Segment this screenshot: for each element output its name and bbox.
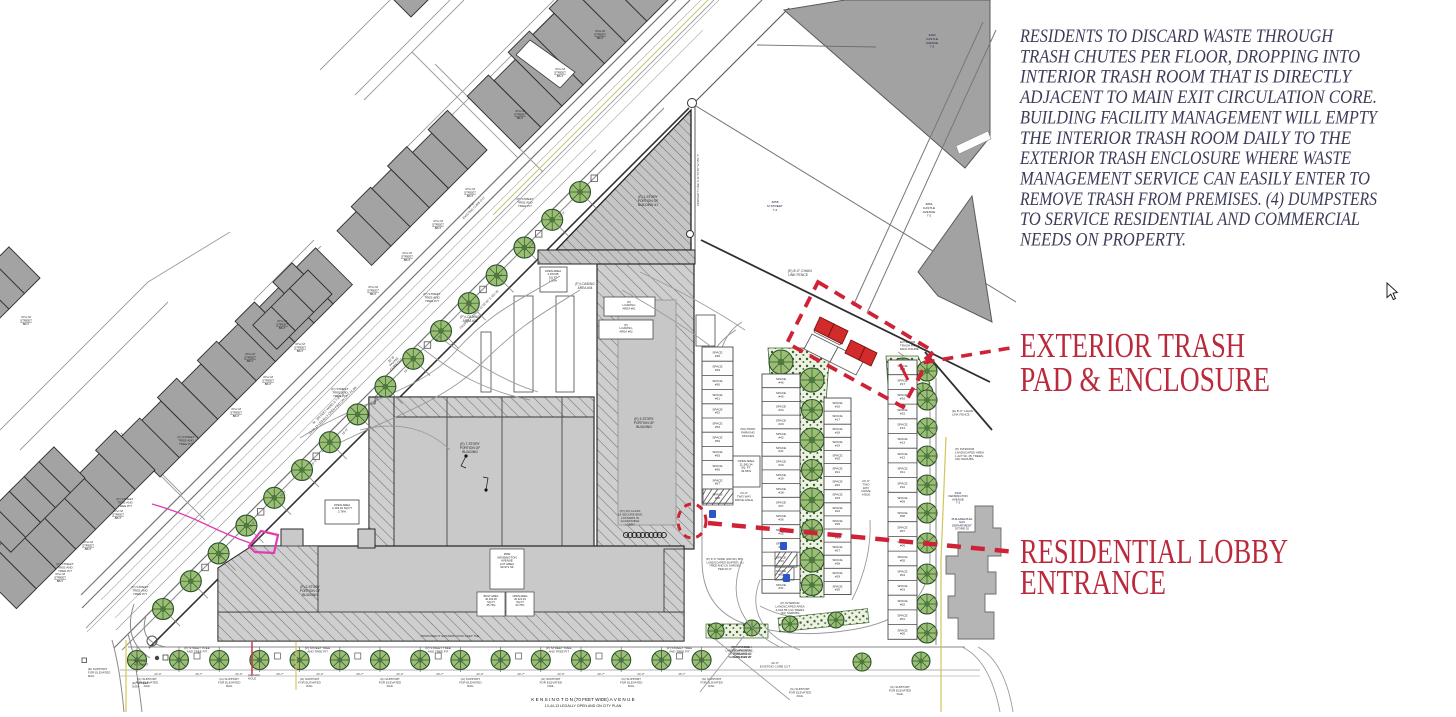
svg-text:20'-7": 20'-7" (356, 672, 363, 676)
svg-text:20'-7": 20'-7" (276, 672, 283, 676)
svg-text:24'-0": 24'-0" (235, 672, 242, 676)
svg-text:(E) 1-STORYPORTION OFBUILDING: (E) 1-STORYPORTION OFBUILDING #1 (638, 195, 659, 207)
svg-text:BUILDING FACILITY MANAGEMENT W: BUILDING FACILITY MANAGEMENT WILL EMPTY (1020, 107, 1379, 128)
svg-text:24'-0": 24'-0" (476, 672, 483, 676)
svg-text:20'-7": 20'-7" (597, 672, 604, 676)
svg-text:INTERIOR TRASH ROOM THAT IS DI: INTERIOR TRASH ROOM THAT IS DIRECTLY (1019, 67, 1353, 88)
svg-text:RESIDENTS TO DISCARD WASTE THR: RESIDENTS TO DISCARD WASTE THROUGH (1019, 26, 1334, 47)
svg-text:PAD & ENCLOSURE: PAD & ENCLOSURE (1020, 360, 1270, 399)
svg-text:(P) LOADINGAREA #04: (P) LOADINGAREA #04 (575, 282, 595, 290)
svg-text:(P) STREET TREEAND TREE PIT: (P) STREET TREEAND TREE PIT (425, 646, 450, 653)
svg-text:24'-0": 24'-0" (154, 672, 161, 676)
svg-text:(P) STREET TREEAND TREE PIT: (P) STREET TREEAND TREE PIT (305, 646, 330, 653)
svg-text:(E) 7-STORYPORTION OFBUILDING: (E) 7-STORYPORTION OFBUILDING (460, 442, 481, 454)
svg-text:20'-7": 20'-7" (517, 672, 524, 676)
svg-text:MANAGEMENT SERVICE CAN EASILY: MANAGEMENT SERVICE CAN EASILY ENTER TO (1019, 169, 1370, 190)
svg-text:24'-0": 24'-0" (557, 672, 564, 676)
svg-text:THE INTERIOR TRASH ROOM DAILY: THE INTERIOR TRASH ROOM DAILY TO THE (1020, 128, 1351, 149)
svg-text:(P) STREETTREE ANDTREE PIT: (P) STREETTREE ANDTREE PIT (116, 497, 133, 508)
svg-text:(P) STREETTREE ANDTREE PIT: (P) STREETTREE ANDTREE PIT (56, 562, 73, 573)
svg-text:PROPERTY LINE S 31°52'30" W 15: PROPERTY LINE S 31°52'30" W 150'-7" (696, 154, 700, 206)
svg-text:TO SERVICE RESIDENTIAL AND COM: TO SERVICE RESIDENTIAL AND COMMERCIAL (1020, 209, 1360, 230)
svg-text:20'-7": 20'-7" (436, 672, 443, 676)
svg-text:PROPOSED 5' EASTERN ROW KEEP T: PROPOSED 5' EASTERN ROW KEEP THE (421, 634, 480, 638)
svg-text:TRASH CHUTES PER FLOOR, DROPPI: TRASH CHUTES PER FLOOR, DROPPING INTO (1020, 46, 1360, 67)
svg-text:20'-7": 20'-7" (678, 672, 685, 676)
svg-text:(P) STREET TREEAND TREE PIT: (P) STREET TREEAND TREE PIT (184, 646, 209, 653)
svg-text:20'-7": 20'-7" (195, 672, 202, 676)
svg-text:(E) 3-STORYPORTION OFBUILDING: (E) 3-STORYPORTION OFBUILDING (634, 417, 655, 429)
svg-text:K E N S I N G T O N (70 FEET: K E N S I N G T O N (70 FEET WIDE) A V E… (531, 697, 634, 702)
svg-text:EXTERIOR TRASH ENCLOSURE WHERE: EXTERIOR TRASH ENCLOSURE WHERE WASTE (1019, 148, 1351, 169)
svg-text:24'-0": 24'-0" (316, 672, 323, 676)
svg-text:24'-0": 24'-0" (637, 672, 644, 676)
svg-text:(P) STREETTREE ANDTREE PIT: (P) STREETTREE ANDTREE PIT (331, 387, 348, 398)
svg-text:(P) STREETTREE ANDTREE PIT: (P) STREETTREE ANDTREE PIT (516, 197, 533, 208)
svg-text:24'-0": 24'-0" (396, 672, 403, 676)
svg-text:ADJACENT TO MAIN EXIT CIRCULAT: ADJACENT TO MAIN EXIT CIRCULATION CORE. (1018, 87, 1377, 108)
svg-text:(P) STREET TREEAND TREE PIT: (P) STREET TREEAND TREE PIT (667, 646, 692, 653)
svg-text:(50) PROP.PARKINGSPACES: (50) PROP.PARKINGSPACES (740, 427, 756, 438)
svg-text:13-44-13 LEGALLY OPEN AND ON C: 13-44-13 LEGALLY OPEN AND ON CITY PLAN (545, 704, 622, 708)
svg-text:REMOVE TRASH FROM PREMISES. (4: REMOVE TRASH FROM PREMISES. (4) DUMPSTER… (1019, 189, 1377, 210)
svg-text:(E) 2-STORYPORTION OFBUILDING: (E) 2-STORYPORTION OFBUILDING (300, 585, 321, 597)
svg-text:(P) STREET TREEAND TREE PIT: (P) STREET TREEAND TREE PIT (546, 646, 571, 653)
svg-text:(P) STREETTREE ANDTREE PIT: (P) STREETTREE ANDTREE PIT (131, 585, 148, 596)
svg-text:(P) STREETTREE ANDTREE PIT: (P) STREETTREE ANDTREE PIT (177, 435, 194, 446)
svg-text:24'-0"TWOWAYDRIVEAISLE: 24'-0"TWOWAYDRIVEAISLE (861, 479, 870, 497)
svg-text:NEEDS ON PROPERTY.: NEEDS ON PROPERTY. (1019, 230, 1186, 251)
svg-text:(P) STREETTREE ANDTREE PIT: (P) STREETTREE ANDTREE PIT (423, 292, 440, 303)
svg-text:ENTRANCE: ENTRANCE (1020, 563, 1166, 602)
